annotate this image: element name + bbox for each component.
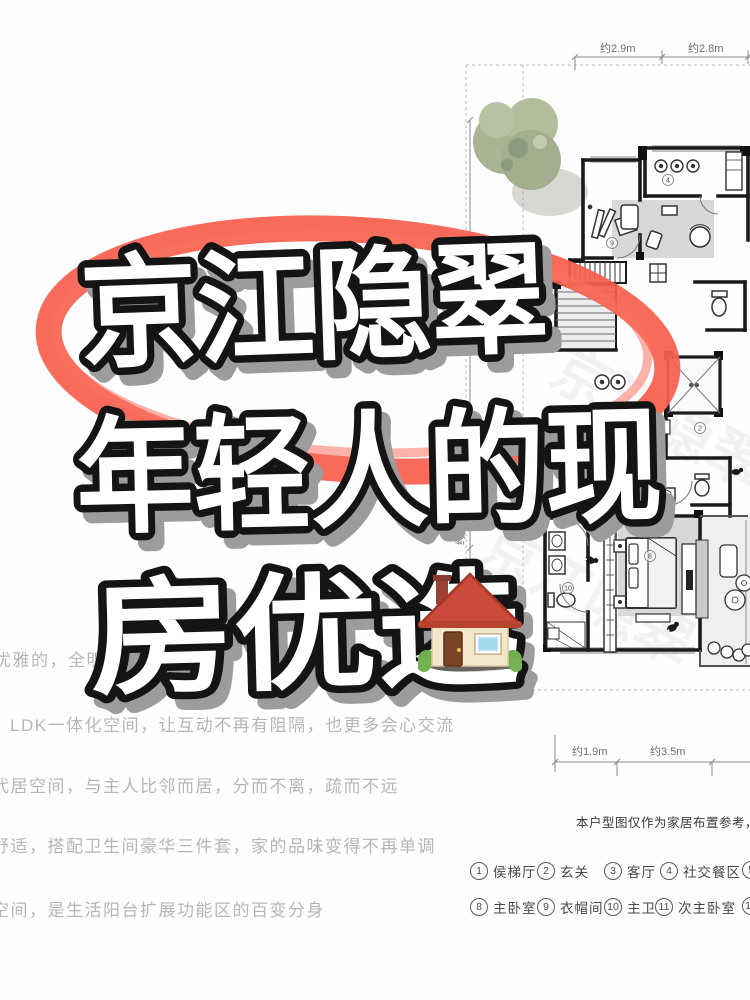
- house-emoji-icon: [418, 566, 522, 674]
- legend-label: 社交餐区: [683, 861, 741, 881]
- plan-room-markers: 2 4 7 8 9 10: [563, 175, 706, 594]
- copy-line1-suffix: 回家: [150, 643, 187, 668]
- legend-label: 客厅: [627, 861, 656, 881]
- legend-number: 1: [470, 862, 488, 880]
- wardrobe-strip: [604, 520, 616, 652]
- tv-unit: [682, 540, 708, 618]
- title-line1: 京江隐翠: [78, 231, 550, 383]
- laundry-machines: [655, 152, 742, 190]
- legend-number: 9: [537, 898, 555, 916]
- master-bathroom: [547, 532, 585, 648]
- svg-text:8: 8: [648, 554, 652, 561]
- windows: [560, 146, 746, 664]
- bed: [614, 538, 676, 622]
- svg-text:7: 7: [658, 476, 662, 483]
- title-line2-shadow: 年轻人的现: [84, 407, 673, 560]
- legend-number: 5: [742, 861, 750, 879]
- dining-furniture: [621, 205, 710, 250]
- legend-label: 玄关: [560, 861, 589, 881]
- svg-text:10: 10: [564, 586, 572, 593]
- legend-label: 次主卧室: [678, 897, 736, 917]
- legend-item: 10 主卫: [604, 897, 656, 917]
- legend-label: 主卫: [627, 897, 656, 917]
- svg-text:约1.9m: 约1.9m: [572, 745, 607, 758]
- svg-text:京江隐翠: 京江隐翠: [541, 336, 750, 502]
- tree-icon: [473, 98, 588, 216]
- balcony-plants: [708, 545, 750, 661]
- legend-number: 10: [604, 898, 622, 916]
- pet-icons: [584, 409, 743, 633]
- legend-item: 5: [742, 861, 750, 879]
- closet-hatch: [570, 262, 626, 283]
- legend-number: 8: [470, 898, 488, 916]
- legend-number: 12: [742, 897, 750, 915]
- legend-item: 3 客厅: [604, 861, 656, 881]
- balcony: [700, 516, 750, 666]
- svg-text:约1.15m: 约1.15m: [454, 507, 467, 545]
- stairs: [556, 285, 616, 350]
- copy-line4: 舒适，搭配卫生间豪华三件套，家的品味变得不再单调: [0, 832, 436, 857]
- wall-columns: [543, 146, 750, 652]
- svg-text:约2.8m: 约2.8m: [688, 42, 723, 55]
- legend-number: 2: [537, 862, 555, 880]
- middle-bathroom: [653, 474, 709, 501]
- copy-line5: 空间，是生活阳台扩展功能区的百变分身: [0, 896, 325, 921]
- copy-line3: 代居空间，与主人比邻而居，分而不离，疏而不远: [0, 772, 399, 797]
- hall-fixtures: [595, 264, 670, 434]
- upper-toilet: [712, 291, 727, 316]
- legend-item: 2 玄关: [537, 861, 589, 881]
- poster-canvas: 京江隐翠 京江隐翠: [0, 0, 750, 1000]
- legend-label: 主卧室: [493, 897, 537, 917]
- legend-item: 4 社交餐区: [660, 861, 741, 881]
- legend-item: 8 主卧室: [470, 897, 537, 917]
- clothes-icons: [588, 205, 637, 238]
- svg-text:约2.9m: 约2.9m: [600, 42, 635, 55]
- door-arcs: [560, 196, 718, 612]
- legend-item: 9 衣帽间: [537, 897, 604, 917]
- legend-item: 12: [742, 897, 750, 915]
- elevator-shaft: [668, 357, 720, 413]
- legend-number: 4: [660, 862, 678, 880]
- svg-text:9: 9: [610, 241, 614, 248]
- svg-text:约3.5m: 约3.5m: [650, 745, 685, 758]
- legend-item: 11 次主卧室: [655, 897, 736, 917]
- legend-number: 3: [604, 862, 622, 880]
- svg-text:4: 4: [666, 178, 670, 185]
- legend-label: 侯梯厅: [493, 861, 537, 881]
- plan-disclaimer: 本户型图仅作为家居布置参考，交付标准以: [576, 812, 750, 831]
- title-line1-shadow: 京江隐翠: [87, 242, 559, 394]
- legend-label: 衣帽间: [560, 897, 604, 917]
- copy-line2: LDK一体化空间，让互动不再有阻隔，也更多会心交流: [10, 711, 455, 736]
- legend-item: 1 侯梯厅: [470, 861, 537, 881]
- svg-text:2: 2: [698, 426, 702, 433]
- copy-line1-prefix: 优雅的，全明: [0, 646, 105, 671]
- walls: [545, 148, 748, 650]
- title-line2: 年轻人的现: [75, 396, 664, 549]
- legend-number: 11: [655, 898, 673, 916]
- room-floors: [556, 200, 750, 668]
